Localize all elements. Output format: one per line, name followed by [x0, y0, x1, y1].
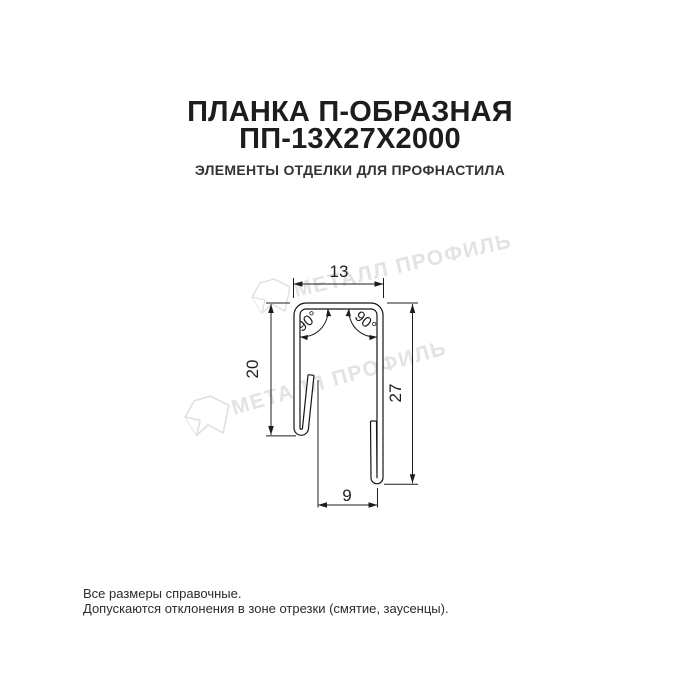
dimension-bottom-width: 9 — [318, 380, 378, 508]
watermark-text: МЕТАЛЛ ПРОФИЛЬ — [292, 229, 514, 302]
dimension-label-27: 27 — [386, 384, 405, 403]
metall-profil-logo-icon — [185, 396, 229, 435]
footer-note-line-1: Все размеры справочные. — [83, 586, 449, 601]
dimension-label-9: 9 — [342, 486, 351, 505]
dimension-left-height: 20 — [243, 303, 296, 436]
angle-label-right: 90° — [351, 308, 379, 336]
footer-note-line-2: Допускаются отклонения в зоне отрезки (с… — [83, 601, 449, 616]
dimension-label-13: 13 — [330, 262, 349, 281]
dimension-right-height: 27 — [384, 303, 418, 484]
footer-notes: Все размеры справочные. Допускаются откл… — [83, 586, 449, 616]
watermark-text: МЕТАЛЛ ПРОФИЛЬ — [229, 336, 449, 420]
angle-annotation-right: 90° — [346, 308, 380, 340]
dimension-label-20: 20 — [243, 360, 262, 379]
watermark-upper: МЕТАЛЛ ПРОФИЛЬ — [252, 229, 514, 313]
watermark-lower: МЕТАЛЛ ПРОФИЛЬ — [185, 336, 449, 435]
